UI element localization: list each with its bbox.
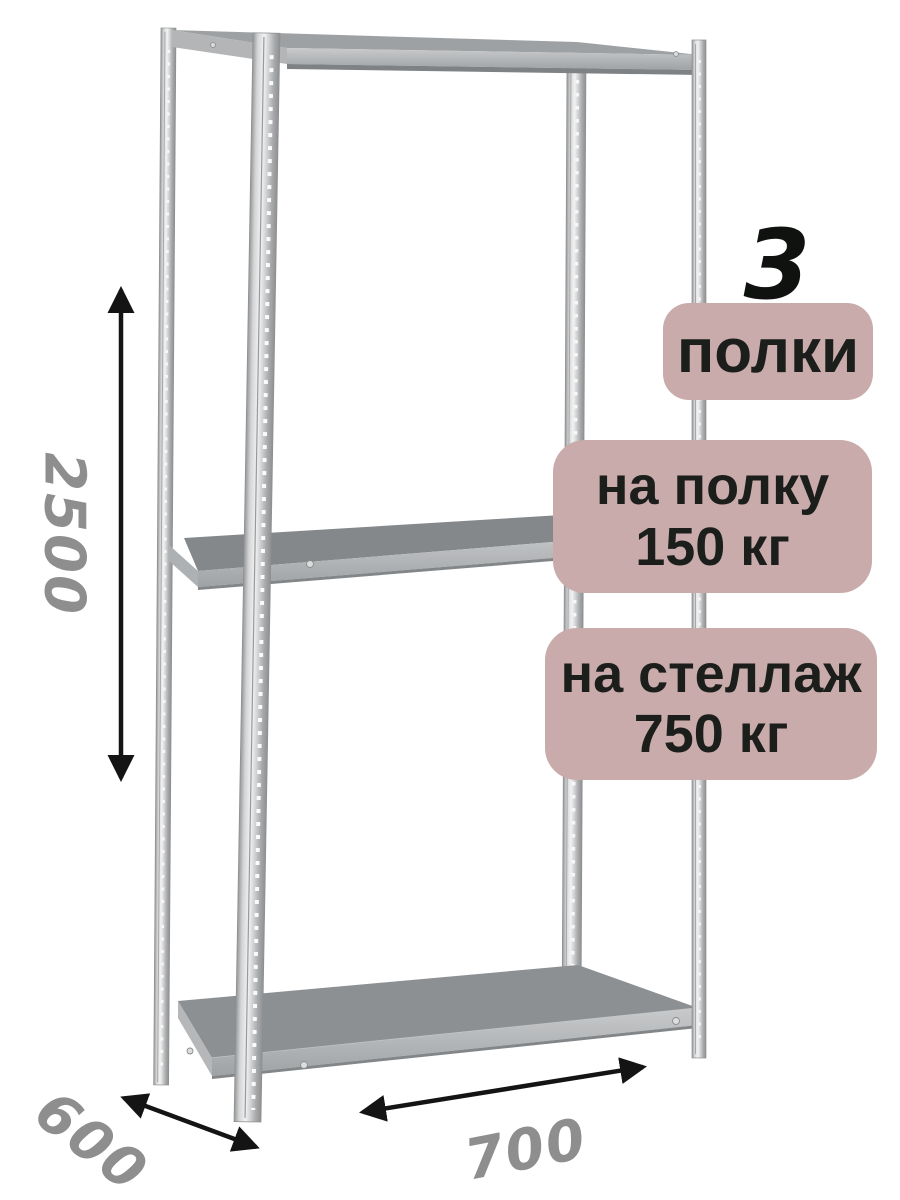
shelf-count-badge-label: полки: [677, 317, 859, 386]
per-rack-load-badge: на стеллаж 750 кг: [545, 628, 877, 780]
per-rack-load-text: на стеллаж: [560, 644, 861, 704]
width-arrow-icon: [363, 1067, 643, 1112]
per-shelf-load-value: 150 кг: [635, 517, 790, 577]
height-dimension-label: 2500: [32, 452, 97, 616]
rack-illustration: [0, 0, 900, 1200]
product-image-shelving-rack: 2500 600 700 3 полки на полку 150 кг на …: [0, 0, 900, 1200]
per-shelf-load-badge: на полку 150 кг: [553, 440, 872, 593]
shelf-count-badge: полки: [663, 303, 873, 400]
per-rack-load-value: 750 кг: [634, 704, 789, 764]
shelf-top: [172, 30, 700, 75]
per-shelf-load-text: на полку: [596, 456, 829, 516]
shelf-count-number: 3: [744, 217, 811, 313]
